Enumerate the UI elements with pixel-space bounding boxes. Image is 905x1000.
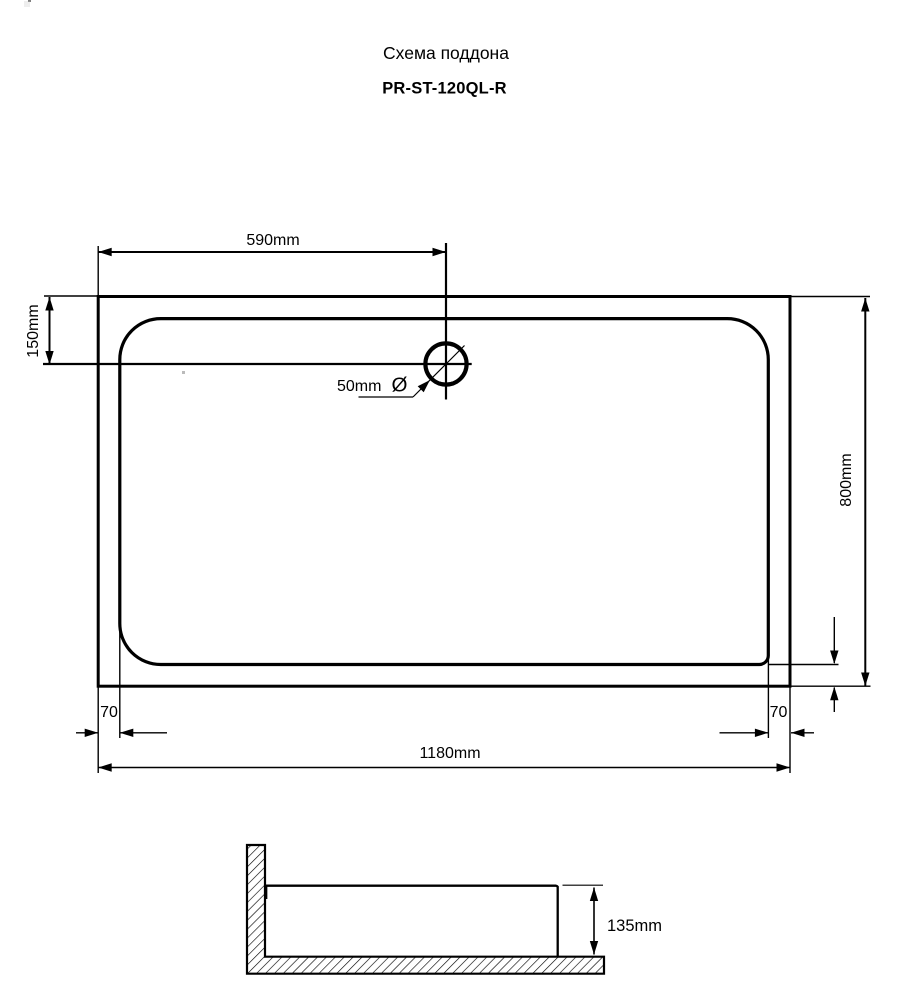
svg-text:Ø: Ø (392, 374, 408, 397)
svg-text:70: 70 (100, 704, 118, 721)
svg-text:135mm: 135mm (607, 917, 662, 935)
svg-text:70: 70 (770, 704, 788, 721)
svg-text:1180mm: 1180mm (419, 745, 480, 762)
svg-text:50mm: 50mm (337, 378, 381, 395)
svg-text:800mm: 800mm (838, 453, 855, 506)
svg-text:PR-ST-120QL-R: PR-ST-120QL-R (382, 80, 507, 98)
svg-text:150mm: 150mm (25, 304, 42, 357)
svg-text:Схема поддона: Схема поддона (383, 43, 509, 63)
svg-text:590mm: 590mm (246, 232, 299, 249)
